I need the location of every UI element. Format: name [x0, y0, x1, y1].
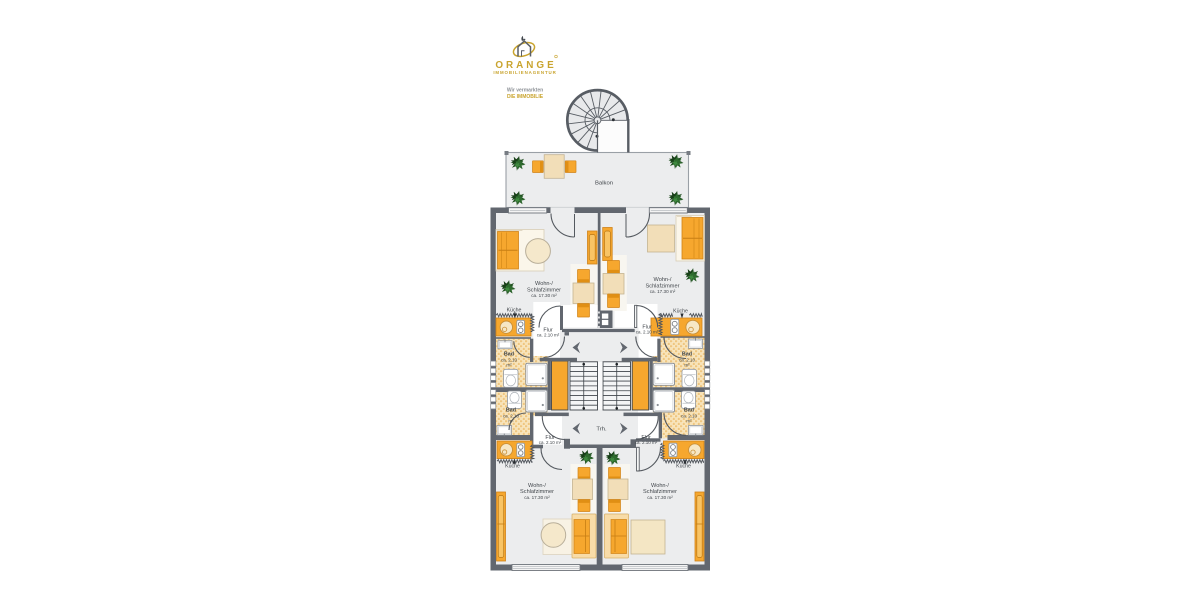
- svg-text:m²: m²: [684, 363, 690, 368]
- svg-text:Wir vermarkten: Wir vermarkten: [507, 88, 543, 94]
- svg-text:m²: m²: [506, 363, 512, 368]
- svg-text:Bad: Bad: [682, 352, 692, 358]
- svg-text:Bad: Bad: [684, 408, 694, 414]
- svg-text:ca. 17.30 m²: ca. 17.30 m²: [650, 289, 676, 294]
- svg-text:Bad: Bad: [504, 352, 514, 358]
- svg-text:IMMOBILIENAGENTUR: IMMOBILIENAGENTUR: [493, 70, 556, 75]
- svg-text:DIE IMMOBILIE: DIE IMMOBILIE: [507, 94, 544, 100]
- svg-text:Trh.: Trh.: [596, 426, 607, 432]
- svg-text:Küche: Küche: [507, 307, 522, 313]
- svg-text:ca. 2.10 m²: ca. 2.10 m²: [537, 333, 560, 338]
- svg-text:ca. 2.10 m²: ca. 2.10 m²: [635, 440, 658, 445]
- svg-text:Wohn-/: Wohn-/: [528, 483, 546, 489]
- svg-text:ca. 2.10 m²: ca. 2.10 m²: [539, 440, 562, 445]
- svg-text:Wohn-/: Wohn-/: [651, 483, 669, 489]
- svg-text:Küche: Küche: [673, 308, 688, 314]
- svg-text:Küche: Küche: [676, 463, 691, 469]
- svg-text:ca. 17.30 m²: ca. 17.30 m²: [647, 495, 673, 500]
- svg-text:m²: m²: [508, 419, 514, 424]
- svg-text:Balkon: Balkon: [595, 180, 613, 186]
- svg-text:Bad: Bad: [506, 408, 516, 414]
- svg-text:Wohn-/: Wohn-/: [535, 281, 553, 287]
- svg-text:ca. 17.30 m²: ca. 17.30 m²: [531, 293, 557, 298]
- svg-text:ca. 17.30 m²: ca. 17.30 m²: [524, 495, 550, 500]
- svg-text:ca. 2.10 m²: ca. 2.10 m²: [636, 330, 659, 335]
- svg-text:Küche: Küche: [505, 463, 520, 469]
- svg-text:m²: m²: [686, 419, 692, 424]
- svg-text:Wohn-/: Wohn-/: [654, 277, 672, 283]
